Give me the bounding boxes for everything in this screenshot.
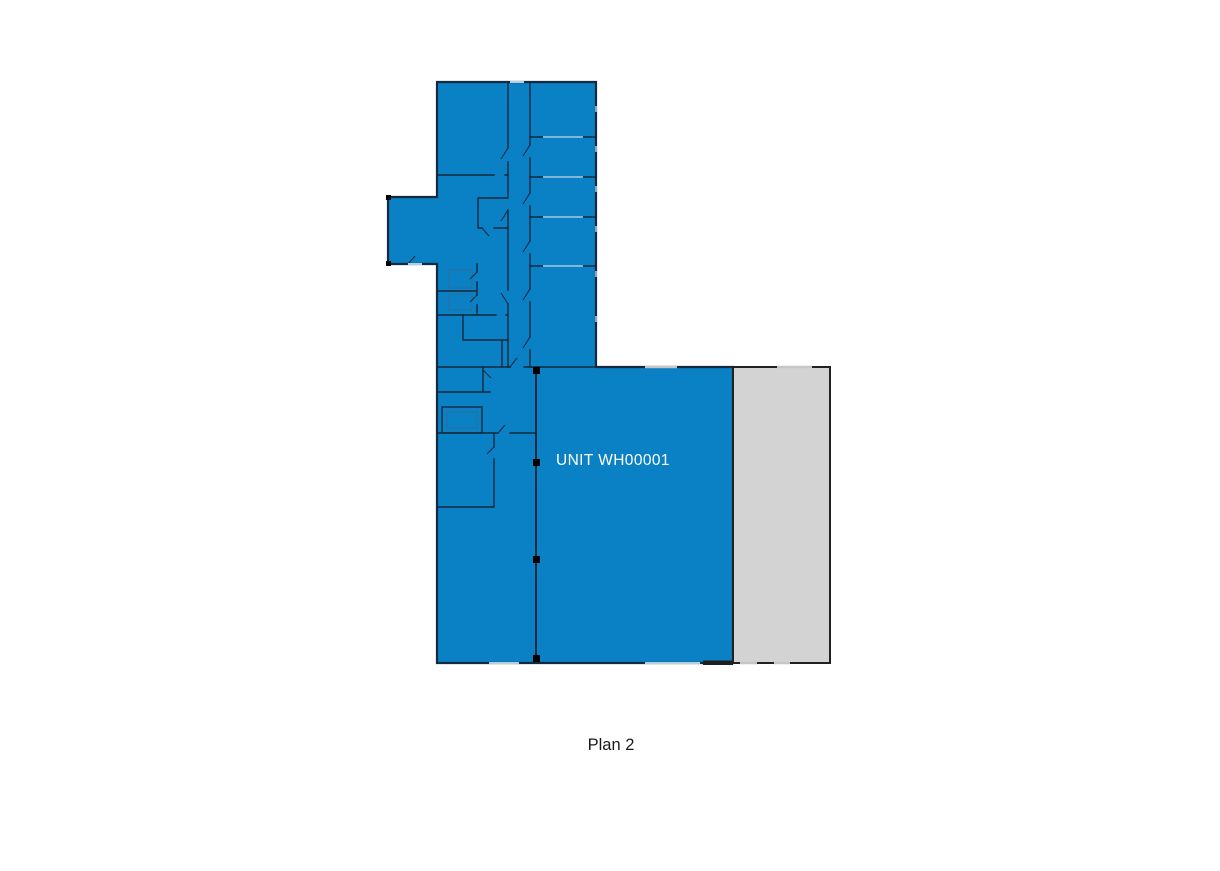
unit-label: UNIT WH00001 bbox=[556, 452, 670, 469]
column-marker bbox=[533, 367, 540, 374]
column-marker bbox=[533, 556, 540, 563]
bottom-wall-thick-segment bbox=[703, 661, 733, 666]
corner-marker bbox=[386, 195, 391, 200]
building-footprint bbox=[388, 82, 733, 663]
corner-marker bbox=[386, 261, 391, 266]
plan-caption: Plan 2 bbox=[588, 736, 635, 754]
column-marker bbox=[533, 459, 540, 466]
column-marker bbox=[533, 655, 540, 662]
adjacent-area bbox=[733, 367, 830, 663]
floor-plan-svg: UNIT WH00001 Plan 2 bbox=[0, 0, 1220, 871]
plan-page: UNIT WH00001 Plan 2 bbox=[0, 0, 1220, 871]
